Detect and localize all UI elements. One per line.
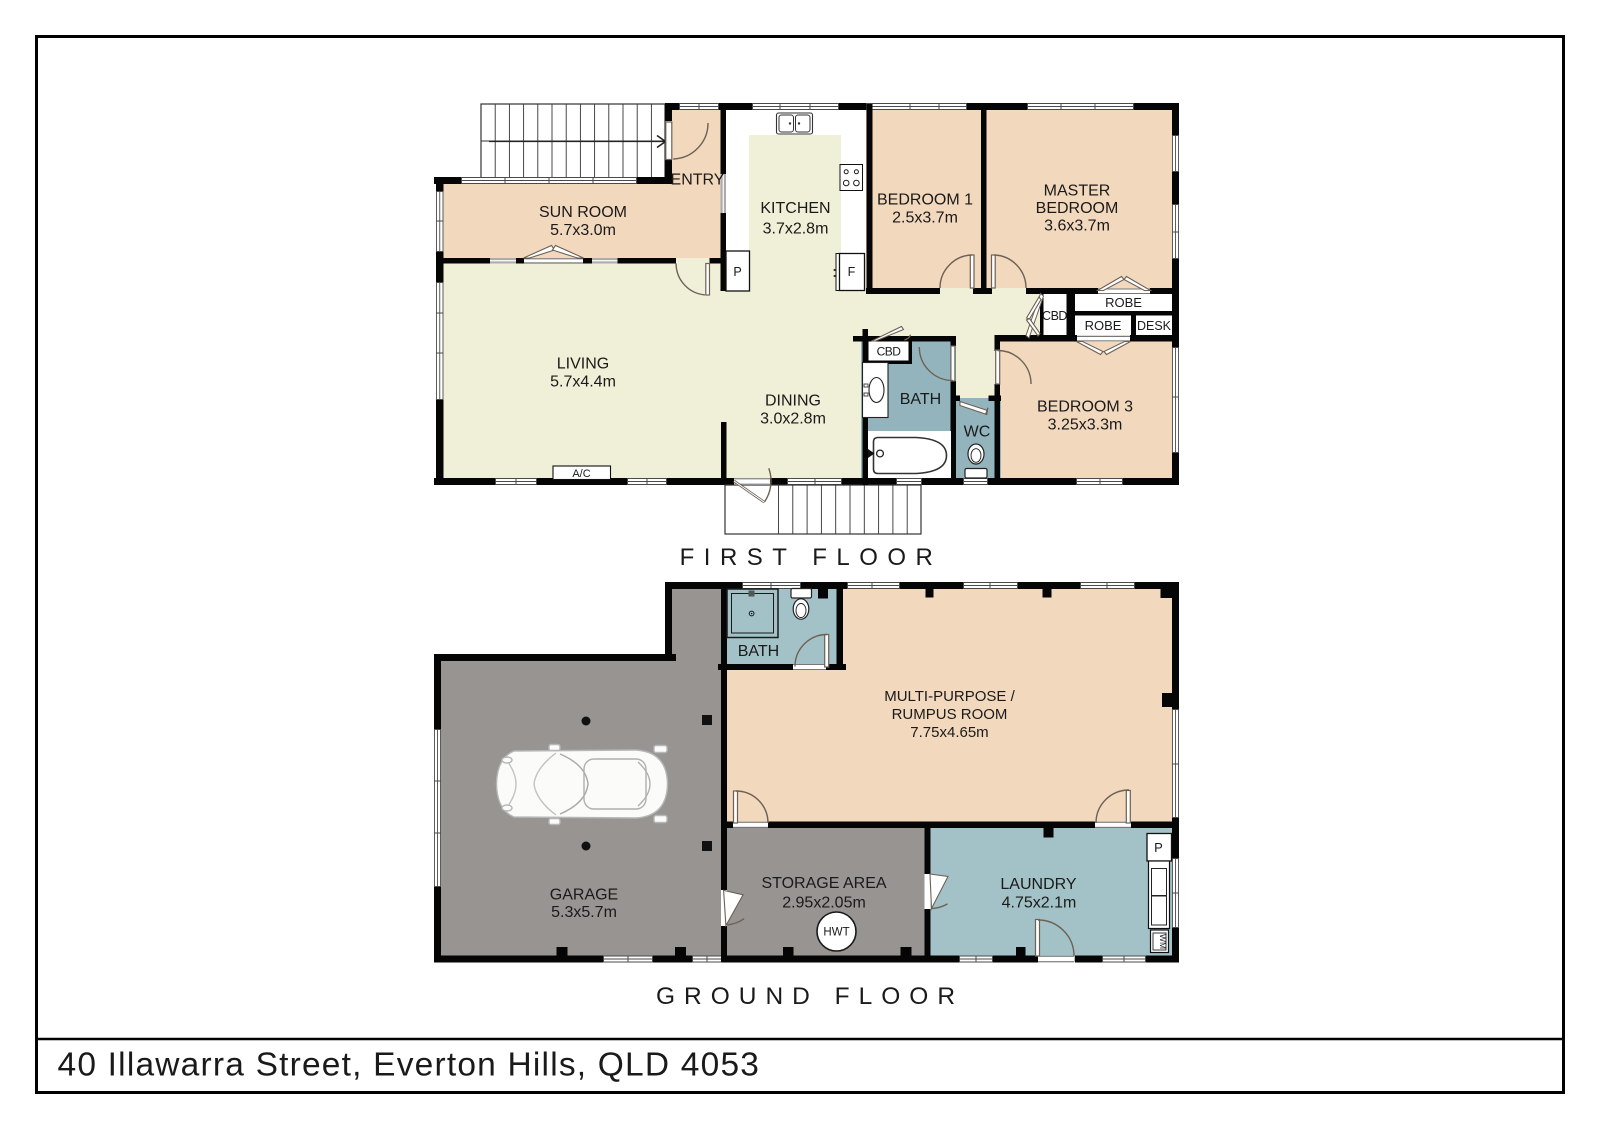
svg-text:ROBE: ROBE [1105, 295, 1142, 310]
svg-text:40 Illawarra Street, Everton H: 40 Illawarra Street, Everton Hills, QLD … [58, 1047, 761, 1084]
svg-text:CBD: CBD [877, 345, 902, 359]
svg-text:4.75x2.1m: 4.75x2.1m [1002, 895, 1077, 912]
svg-text:SUN ROOM: SUN ROOM [539, 204, 627, 221]
svg-text:BATH: BATH [900, 391, 941, 408]
svg-text:ROBE: ROBE [1085, 318, 1122, 333]
svg-text:STORAGE AREA: STORAGE AREA [761, 875, 886, 892]
svg-text:WC: WC [964, 424, 991, 441]
svg-text:MULTI-PURPOSE /: MULTI-PURPOSE / [884, 688, 1015, 705]
svg-text:MASTER: MASTER [1044, 183, 1111, 200]
svg-text:2.5x3.7m: 2.5x3.7m [892, 210, 958, 227]
svg-text:FIRST FLOOR: FIRST FLOOR [680, 544, 943, 571]
svg-text:3.25x3.3m: 3.25x3.3m [1048, 417, 1123, 434]
svg-text:RUMPUS ROOM: RUMPUS ROOM [892, 706, 1008, 723]
svg-text:2.95x2.05m: 2.95x2.05m [782, 895, 866, 912]
svg-text:DESK: DESK [1137, 319, 1172, 333]
svg-text:7.75x4.65m: 7.75x4.65m [910, 724, 988, 741]
svg-text:F: F [848, 265, 856, 279]
svg-text:HWT: HWT [823, 927, 849, 939]
svg-text:LIVING: LIVING [557, 356, 609, 373]
svg-text:ENTRY: ENTRY [671, 172, 725, 189]
svg-text:P: P [1154, 840, 1163, 855]
svg-text:WM: WM [1158, 934, 1168, 949]
svg-text:5.3x5.7m: 5.3x5.7m [551, 904, 617, 921]
svg-text:P: P [733, 265, 741, 279]
svg-text:KITCHEN: KITCHEN [760, 200, 830, 217]
svg-text:BEDROOM 1: BEDROOM 1 [877, 192, 973, 209]
svg-text:5.7x4.4m: 5.7x4.4m [550, 374, 616, 391]
svg-text:3.0x2.8m: 3.0x2.8m [760, 411, 826, 428]
svg-text:BEDROOM 3: BEDROOM 3 [1037, 399, 1133, 416]
svg-text:DINING: DINING [765, 393, 821, 410]
svg-text:GROUND FLOOR: GROUND FLOOR [656, 983, 964, 1010]
svg-text:BEDROOM: BEDROOM [1036, 200, 1119, 217]
svg-text:5.7x3.0m: 5.7x3.0m [550, 222, 616, 239]
svg-text:3.7x2.8m: 3.7x2.8m [763, 221, 829, 238]
svg-text:BATH: BATH [738, 643, 779, 660]
svg-text:3.6x3.7m: 3.6x3.7m [1044, 218, 1110, 235]
svg-text:GARAGE: GARAGE [550, 887, 618, 904]
svg-text:LAUNDRY: LAUNDRY [1000, 876, 1077, 893]
svg-text:CBD: CBD [1042, 309, 1067, 323]
svg-text:A/C: A/C [572, 468, 590, 480]
